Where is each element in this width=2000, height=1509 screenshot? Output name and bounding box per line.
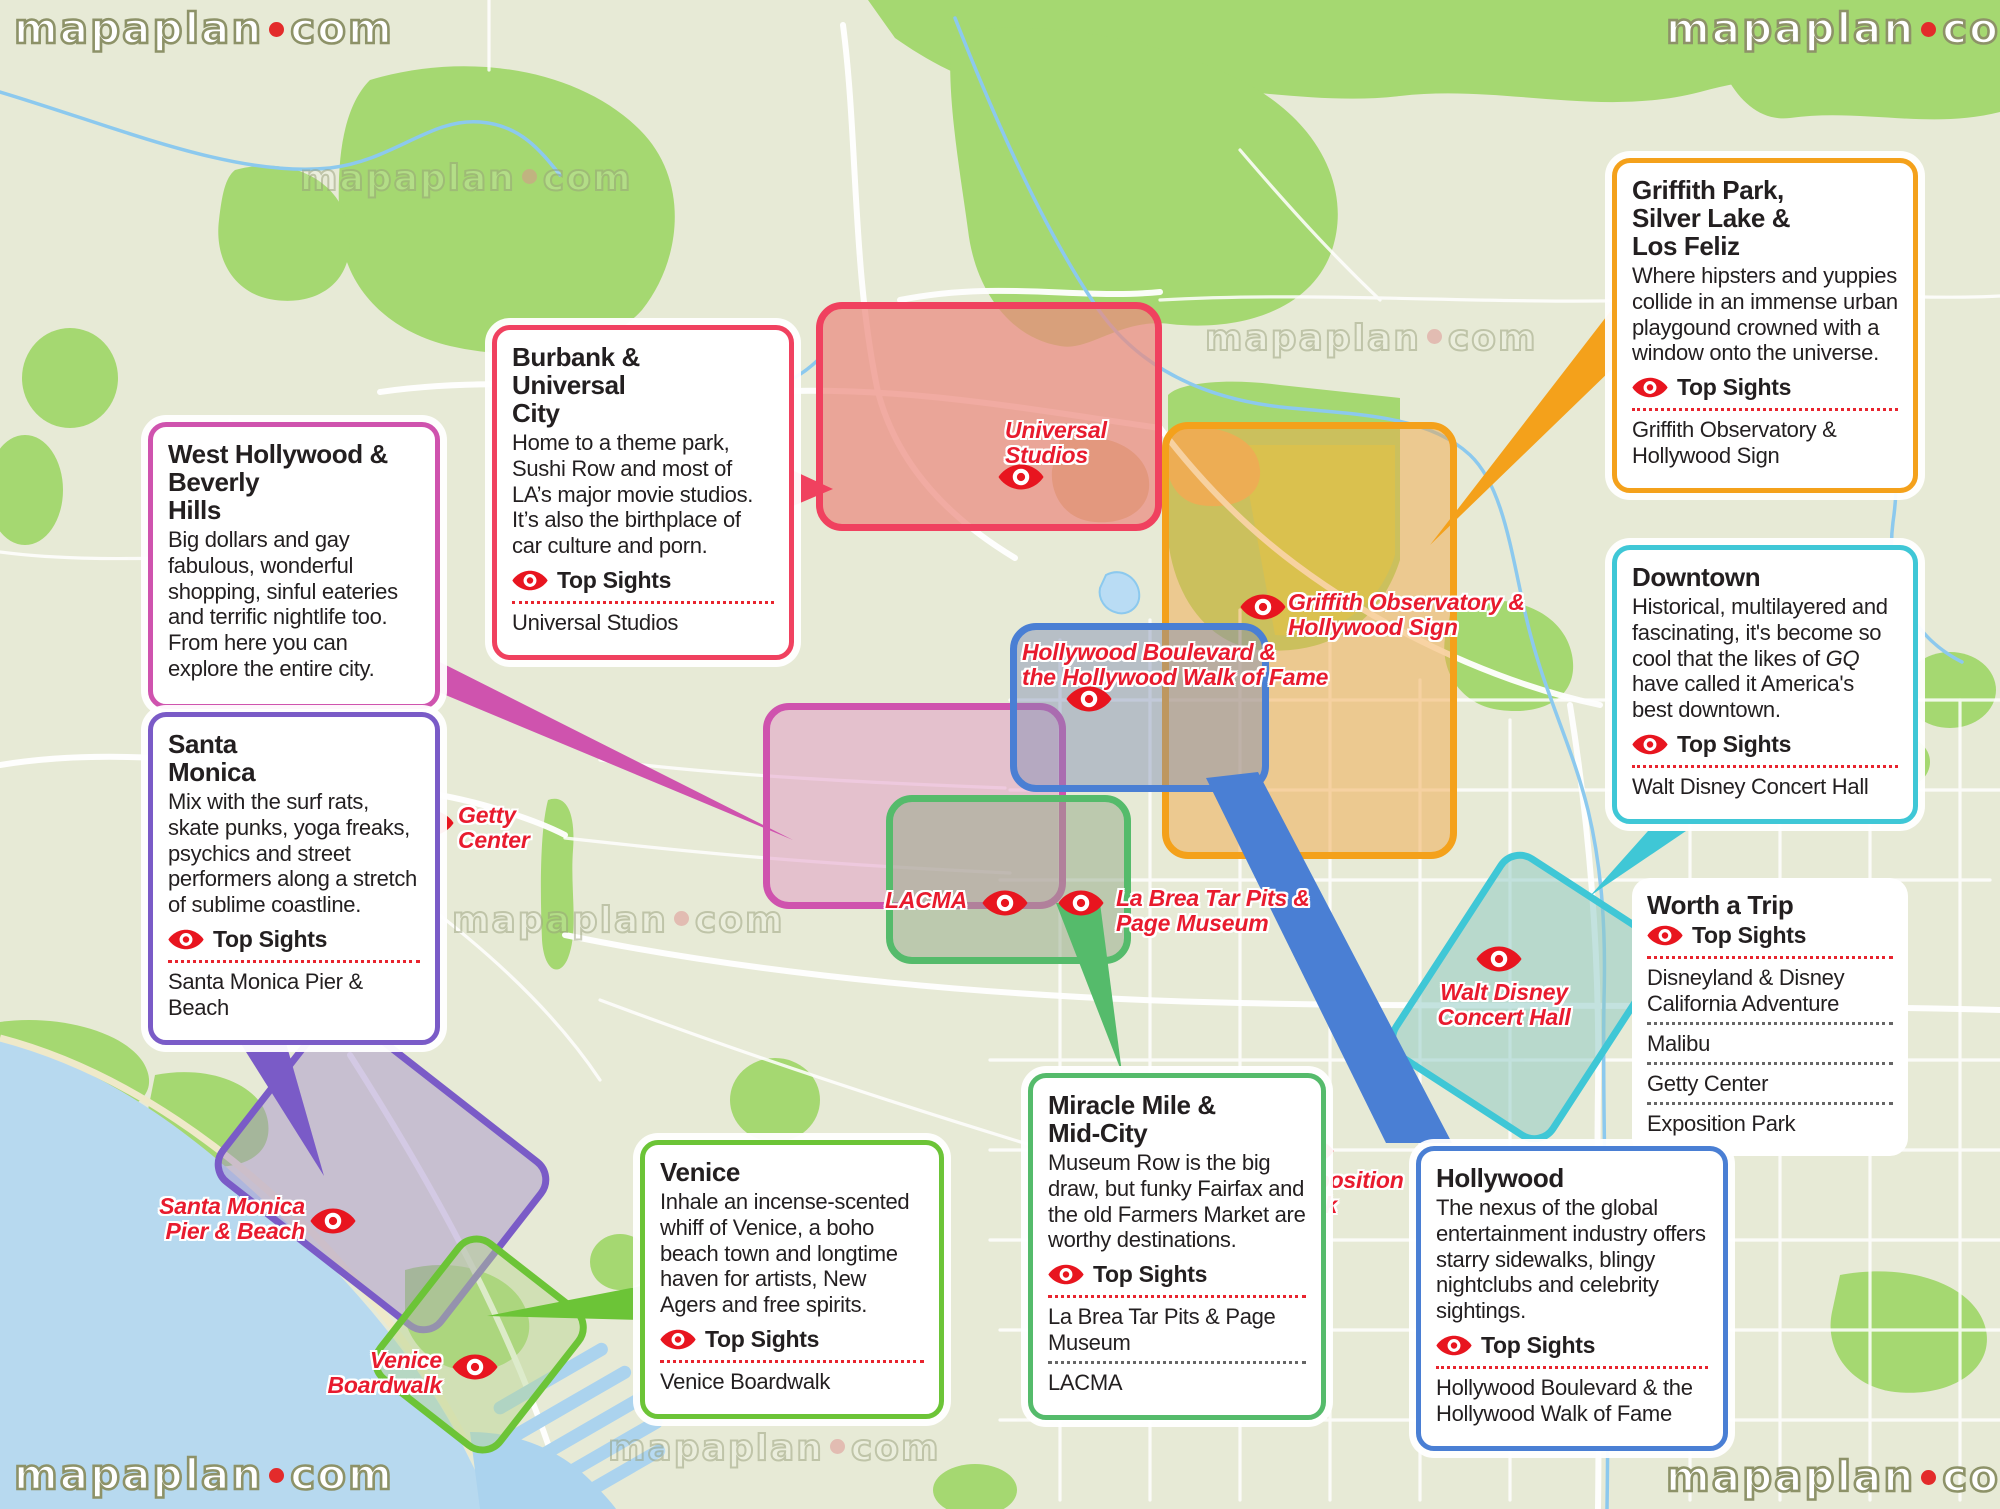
top-sights-label: Top Sights — [705, 1326, 819, 1353]
top-sights-label: Top Sights — [1481, 1332, 1595, 1359]
logo-dot — [269, 1468, 284, 1483]
eye-marker-la-brea — [1058, 888, 1104, 918]
callout-hollywood: Hollywood The nexus of the global entert… — [1416, 1146, 1728, 1451]
eye-marker-lacma — [982, 888, 1028, 918]
sight-item: LACMA — [1048, 1361, 1306, 1401]
eye-icon — [1632, 733, 1668, 756]
pointer-griffith — [1430, 308, 1613, 545]
callout-griffith-park: Griffith Park, Silver Lake & Los Feliz W… — [1612, 158, 1918, 493]
callout-body: Inhale an incense-scented whiff of Venic… — [660, 1189, 924, 1318]
pointer-santa-monica — [236, 1036, 324, 1176]
top-sights-label: Top Sights — [1677, 731, 1791, 758]
top-sights-heading: Top Sights — [1436, 1332, 1708, 1369]
eye-icon — [1436, 1334, 1472, 1357]
callout-title: Venice — [660, 1158, 924, 1186]
callout-title: Miracle Mile & Mid-City — [1048, 1091, 1306, 1147]
map-label-griffith-observatory: Griffith Observatory & Hollywood Sign — [1288, 590, 1525, 641]
map-label-venice-boardwalk: Venice Boardwalk — [300, 1348, 442, 1399]
callout-body: Museum Row is the big draw, but funky Fa… — [1048, 1150, 1306, 1253]
top-sights-heading: Top Sights — [1647, 922, 1893, 959]
sight-item: Universal Studios — [512, 604, 774, 641]
callout-downtown: Downtown Historical, multilayered and fa… — [1612, 545, 1918, 824]
callout-title: Burbank & Universal City — [512, 343, 774, 427]
logo-dot — [1921, 22, 1936, 37]
top-sights-label: Top Sights — [213, 926, 327, 953]
callout-title: West Hollywood & Beverly Hills — [168, 440, 420, 524]
callout-title: Griffith Park, Silver Lake & Los Feliz — [1632, 176, 1898, 260]
map-label-disney-hall: Walt Disney Concert Hall — [1434, 980, 1574, 1031]
brand-logo-bottom-right: mapaplancom — [1666, 1452, 2000, 1501]
eye-icon — [1048, 1263, 1084, 1286]
sight-item: Exposition Park — [1647, 1102, 1893, 1142]
sight-item: Malibu — [1647, 1022, 1893, 1062]
top-sights-heading: Top Sights — [1632, 731, 1898, 768]
map-label-sm-pier: Santa Monica Pier & Beach — [150, 1194, 305, 1245]
brand-logo-top-left: mapaplancom — [14, 4, 394, 53]
brand-logo-bottom-left: mapaplancom — [14, 1450, 394, 1499]
eye-marker-griffith-observatory — [1240, 592, 1286, 622]
top-sights-heading: Top Sights — [512, 567, 774, 604]
top-sights-label: Top Sights — [1692, 922, 1806, 949]
top-sights-heading: Top Sights — [168, 926, 420, 963]
callout-worth-a-trip: Worth a Trip Top Sights Disneyland & Dis… — [1632, 878, 1908, 1156]
callout-miracle-mile: Miracle Mile & Mid-City Museum Row is th… — [1028, 1073, 1326, 1420]
map-label-universal-studios: Universal Studios — [1005, 418, 1107, 469]
callout-body: Historical, multilayered and fascinating… — [1632, 594, 1898, 723]
callout-body: Mix with the surf rats, skate punks, yog… — [168, 789, 420, 918]
callout-body: Where hipsters and yuppies collide in an… — [1632, 263, 1898, 366]
la-tourist-map: { "brand": {"name": "mapaplan", "tld": "… — [0, 0, 2000, 1509]
sight-item: Venice Boardwalk — [660, 1363, 924, 1400]
eye-icon — [660, 1328, 696, 1351]
sight-item: Getty Center — [1647, 1062, 1893, 1102]
top-sights-label: Top Sights — [1677, 374, 1791, 401]
sight-item: Walt Disney Concert Hall — [1632, 768, 1898, 805]
callout-title: Santa Monica — [168, 730, 420, 786]
eye-icon — [168, 928, 204, 951]
callout-title: Hollywood — [1436, 1164, 1708, 1192]
map-label-lacma: LACMA — [885, 888, 967, 913]
callout-burbank: Burbank & Universal City Home to a theme… — [492, 325, 794, 660]
pointer-miracle-mile — [1056, 903, 1122, 1073]
eye-icon — [512, 569, 548, 592]
sight-item: Griffith Observatory & Hollywood Sign — [1632, 411, 1898, 474]
callout-body: Big dollars and gay fabulous, wonderful … — [168, 527, 420, 681]
brand-logo-top-right: mapaplancom — [1666, 4, 2000, 53]
callout-title: Worth a Trip — [1647, 891, 1893, 919]
logo-dot — [1921, 1470, 1936, 1485]
map-label-hollywood-blvd: Hollywood Boulevard & the Hollywood Walk… — [1022, 640, 1328, 691]
map-label-la-brea: La Brea Tar Pits & Page Museum — [1116, 886, 1310, 937]
callout-west-hollywood: West Hollywood & Beverly Hills Big dolla… — [148, 422, 440, 709]
eye-marker-hollywood-blvd — [1066, 684, 1112, 714]
sight-item: Santa Monica Pier & Beach — [168, 963, 420, 1026]
callout-body: The nexus of the global entertainment in… — [1436, 1195, 1708, 1324]
callout-venice: Venice Inhale an incense-scented whiff o… — [640, 1140, 944, 1419]
top-sights-label: Top Sights — [557, 567, 671, 594]
callout-body: Home to a theme park, Sushi Row and most… — [512, 430, 774, 559]
map-label-getty-center: Getty Center — [458, 803, 530, 854]
eye-marker-venice-boardwalk — [452, 1352, 498, 1382]
eye-icon — [1632, 376, 1668, 399]
eye-marker-universal-studios — [998, 462, 1044, 492]
top-sights-heading: Top Sights — [660, 1326, 924, 1363]
top-sights-heading: Top Sights — [1048, 1261, 1306, 1298]
callout-santa-monica: Santa Monica Mix with the surf rats, ska… — [148, 712, 440, 1045]
logo-dot — [269, 22, 284, 37]
callout-title: Downtown — [1632, 563, 1898, 591]
top-sights-label: Top Sights — [1093, 1261, 1207, 1288]
sight-item: Hollywood Boulevard & the Hollywood Walk… — [1436, 1369, 1708, 1432]
eye-marker-sm-pier — [310, 1206, 356, 1236]
eye-marker-disney-hall — [1476, 944, 1522, 974]
eye-icon — [1647, 924, 1683, 947]
sight-item: Disneyland & Disney California Adventure — [1647, 959, 1893, 1022]
sight-item: La Brea Tar Pits & Page Museum — [1048, 1298, 1306, 1361]
pointer-venice — [487, 1286, 641, 1320]
top-sights-heading: Top Sights — [1632, 374, 1898, 411]
